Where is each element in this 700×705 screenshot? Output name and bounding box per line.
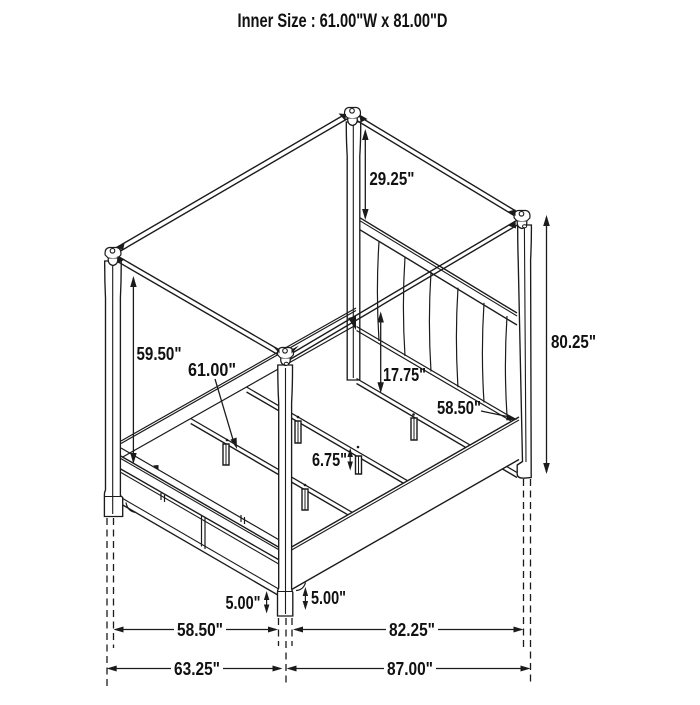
svg-text:58.50": 58.50": [177, 620, 223, 640]
svg-text:17.75": 17.75": [383, 365, 426, 385]
svg-text:6.75": 6.75": [312, 450, 347, 470]
svg-text:61.00": 61.00": [188, 360, 236, 380]
svg-text:58.50": 58.50": [437, 398, 481, 418]
svg-text:5.00": 5.00": [226, 593, 261, 613]
svg-text:63.25": 63.25": [174, 659, 220, 679]
svg-text:5.00": 5.00": [311, 588, 346, 608]
svg-text:82.25": 82.25": [389, 620, 435, 640]
svg-text:80.25": 80.25": [551, 332, 596, 352]
svg-text:87.00": 87.00": [387, 659, 433, 679]
svg-text:59.50": 59.50": [137, 344, 182, 364]
svg-text:Inner Size : 61.00"W x 81.00"D: Inner Size : 61.00"W x 81.00"D: [238, 11, 448, 32]
svg-text:29.25": 29.25": [369, 169, 414, 189]
